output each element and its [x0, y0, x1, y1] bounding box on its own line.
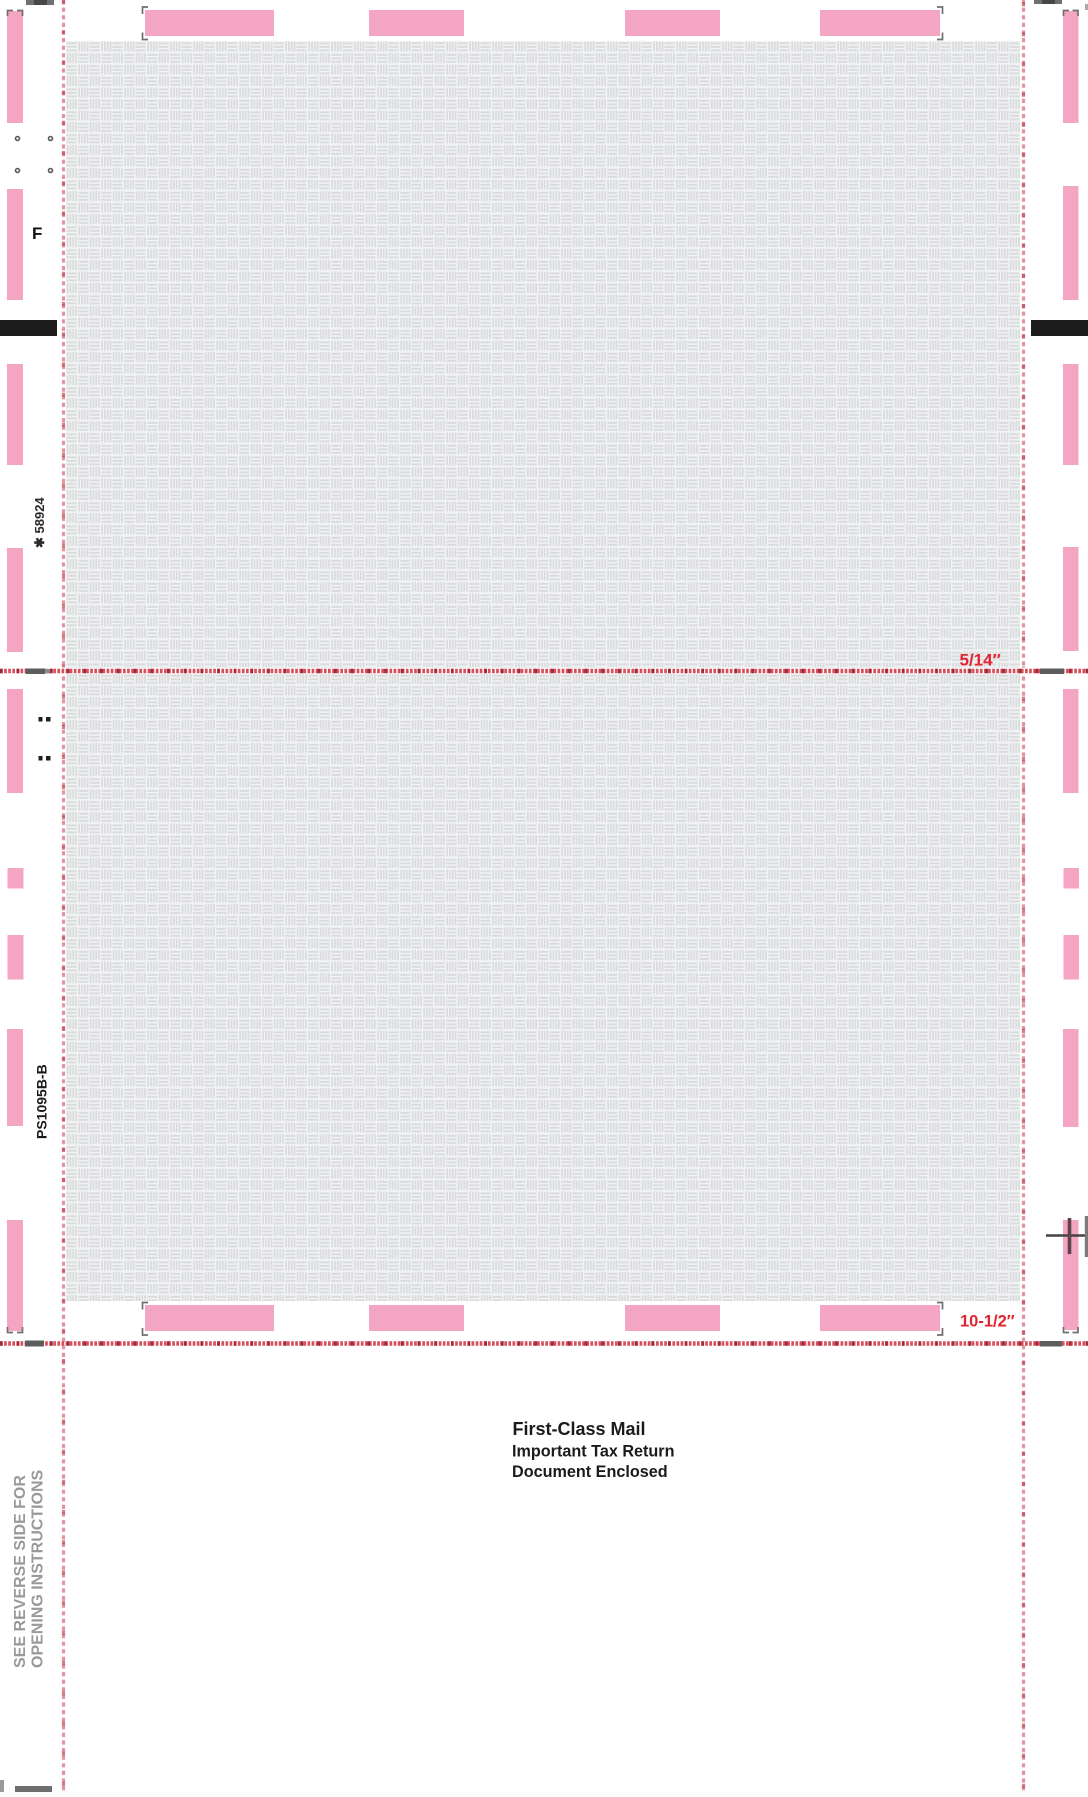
svg-text:First-Class Mail: First-Class Mail — [513, 1419, 646, 1439]
svg-text:PS1095B-B: PS1095B-B — [34, 1064, 50, 1139]
svg-text:5/14″: 5/14″ — [960, 651, 1001, 670]
svg-text:Document Enclosed: Document Enclosed — [512, 1463, 668, 1481]
svg-text:OPENING INSTRUCTIONS: OPENING INSTRUCTIONS — [30, 1469, 47, 1668]
svg-text:✱ 58924: ✱ 58924 — [32, 497, 47, 548]
svg-text:10-1/2″: 10-1/2″ — [960, 1313, 1015, 1331]
svg-text:SEE REVERSE SIDE FOR: SEE REVERSE SIDE FOR — [12, 1475, 29, 1668]
svg-text:Important Tax Return: Important Tax Return — [512, 1443, 674, 1461]
svg-text:F: F — [32, 224, 42, 243]
